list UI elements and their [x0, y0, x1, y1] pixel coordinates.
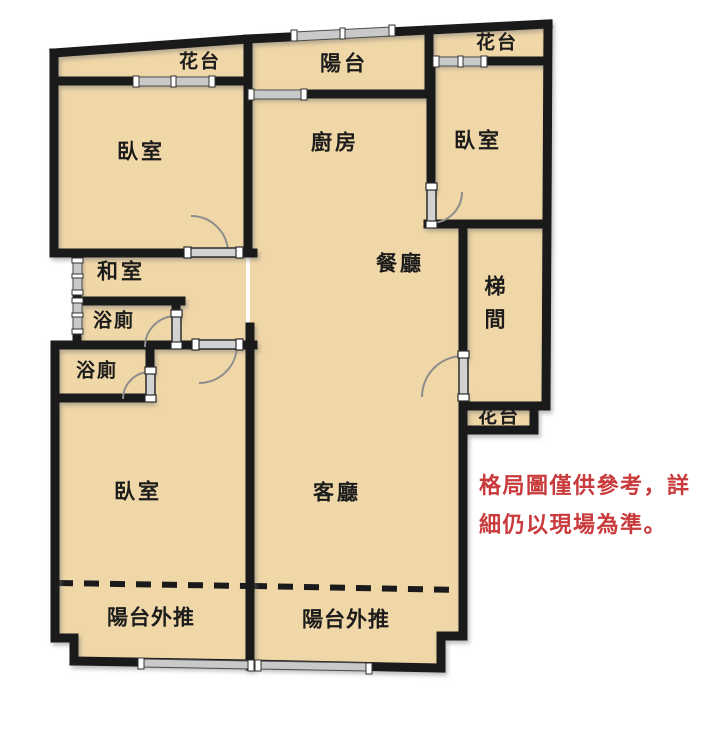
door-jamb: [458, 351, 469, 358]
label-living-room: 客廳: [313, 480, 361, 505]
window-cap: [72, 329, 83, 334]
window-cap: [72, 290, 83, 295]
label-bedroom-top-right: 臥室: [454, 128, 502, 153]
window-cap: [72, 313, 83, 317]
door-leaf-bedroom1: [189, 248, 238, 257]
door-leaf-bath-lower: [146, 371, 155, 398]
door-leaf-bath-upper: [172, 314, 181, 345]
label-kitchen: 廚房: [311, 130, 359, 155]
window-bottom-left: [142, 659, 250, 669]
door-jamb: [171, 342, 182, 349]
window-cap: [458, 56, 463, 67]
window-cap: [138, 658, 144, 669]
window-cap: [340, 28, 345, 39]
window-cap: [72, 274, 83, 278]
window-cap: [255, 660, 261, 671]
window-cap: [72, 258, 83, 263]
label-bedroom-top-left: 臥室: [117, 139, 165, 164]
window-cap: [248, 660, 254, 671]
label-balcony-extension-left: 陽台外推: [107, 605, 195, 630]
door-leaf-bedroom2: [427, 188, 436, 223]
door-jamb: [145, 395, 156, 402]
window-cap: [433, 56, 439, 67]
door-jamb: [426, 183, 437, 190]
wall-exterior-bottom-right-notch: [441, 636, 463, 668]
door-jamb: [171, 310, 182, 317]
window-balcony-kitchen-slider: [251, 90, 303, 99]
label-flower-terrace-top-right: 花台: [476, 32, 518, 55]
door-jamb: [192, 339, 199, 350]
door-jamb: [426, 221, 437, 228]
label-balcony-top: 陽台: [320, 51, 368, 76]
window-cap: [72, 298, 83, 303]
label-bathroom-lower: 浴廁: [76, 360, 118, 383]
window-cap: [133, 76, 139, 87]
label-stairwell: 梯間: [483, 270, 507, 335]
label-dining-room: 餐廳: [376, 251, 424, 276]
window-cap: [209, 76, 215, 87]
floor-plan: 花台 陽台 花台 臥室 廚房 臥室 和室 餐廳 梯間 浴廁 浴廁 花台 臥室 客…: [0, 0, 708, 740]
door-jamb: [458, 394, 469, 401]
window-cap: [366, 663, 372, 674]
wall-exterior-right: [546, 24, 548, 406]
door-leaf-entrance: [459, 356, 468, 397]
window-cap: [248, 89, 254, 100]
door-jamb: [184, 247, 191, 258]
window-cap: [291, 30, 297, 41]
window-cap: [481, 56, 487, 67]
window-cap: [389, 25, 395, 36]
label-bedroom-bottom-left: 臥室: [114, 479, 162, 504]
window-cap: [301, 89, 307, 100]
door-jamb: [145, 367, 156, 374]
window-bottom-right: [258, 661, 368, 671]
disclaimer-text: 格局圖僅供參考，詳 細仍以現場為準。: [479, 467, 708, 545]
label-japanese-room: 和室: [97, 259, 145, 284]
label-balcony-extension-right: 陽台外推: [302, 607, 390, 632]
door-jamb: [236, 247, 243, 258]
label-flower-terrace-top-left: 花台: [179, 51, 221, 74]
window-cap: [171, 76, 176, 87]
label-flower-terrace-right: 花台: [478, 406, 520, 429]
door-jamb: [236, 339, 243, 350]
label-bathroom-upper: 浴廁: [93, 310, 135, 333]
door-leaf-bedroom3: [197, 340, 238, 349]
